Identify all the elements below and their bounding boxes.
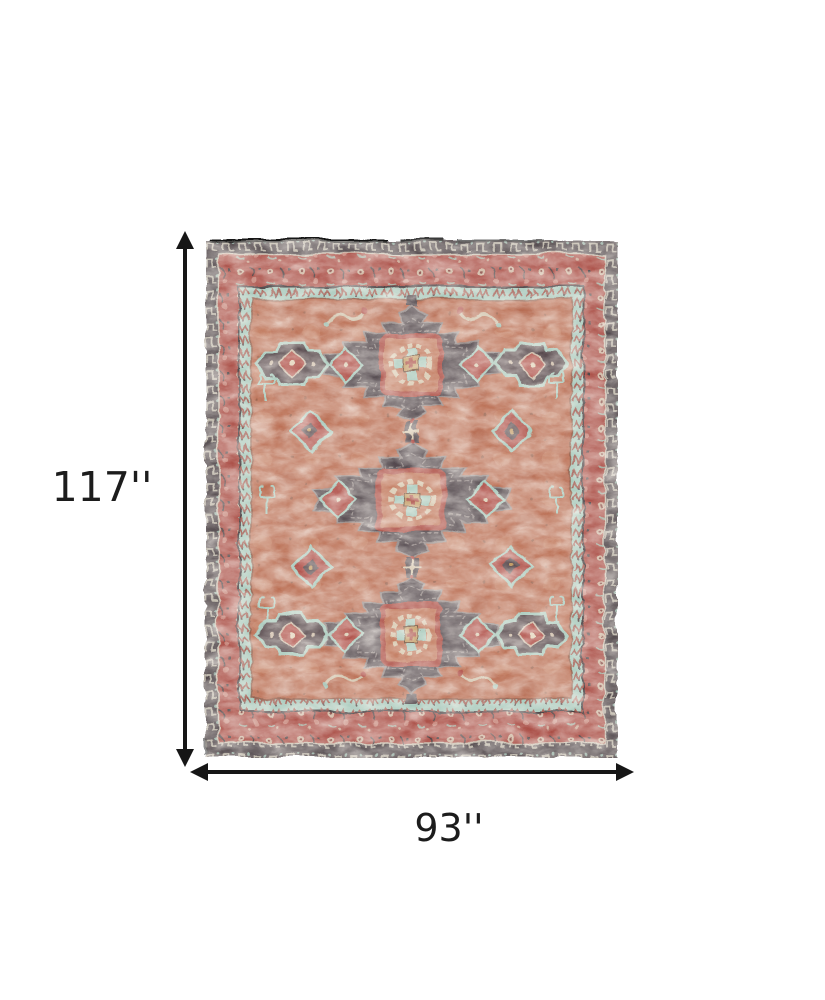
height-dimension-label: 117'' — [37, 463, 167, 511]
arrow-head-up-icon — [176, 231, 194, 249]
width-dimension-arrow — [190, 763, 634, 781]
arrow-head-down-icon — [176, 749, 194, 767]
arrow-head-right-icon — [616, 763, 634, 781]
height-dimension-arrow — [176, 231, 194, 767]
product-dimension-image: 117'' 93'' — [0, 0, 825, 1000]
arrow-head-left-icon — [190, 763, 208, 781]
width-dimension-label: 93'' — [389, 806, 509, 850]
rug-image — [202, 237, 618, 758]
rug-graphic — [202, 237, 618, 758]
rug-wear-overlay — [204, 239, 616, 756]
